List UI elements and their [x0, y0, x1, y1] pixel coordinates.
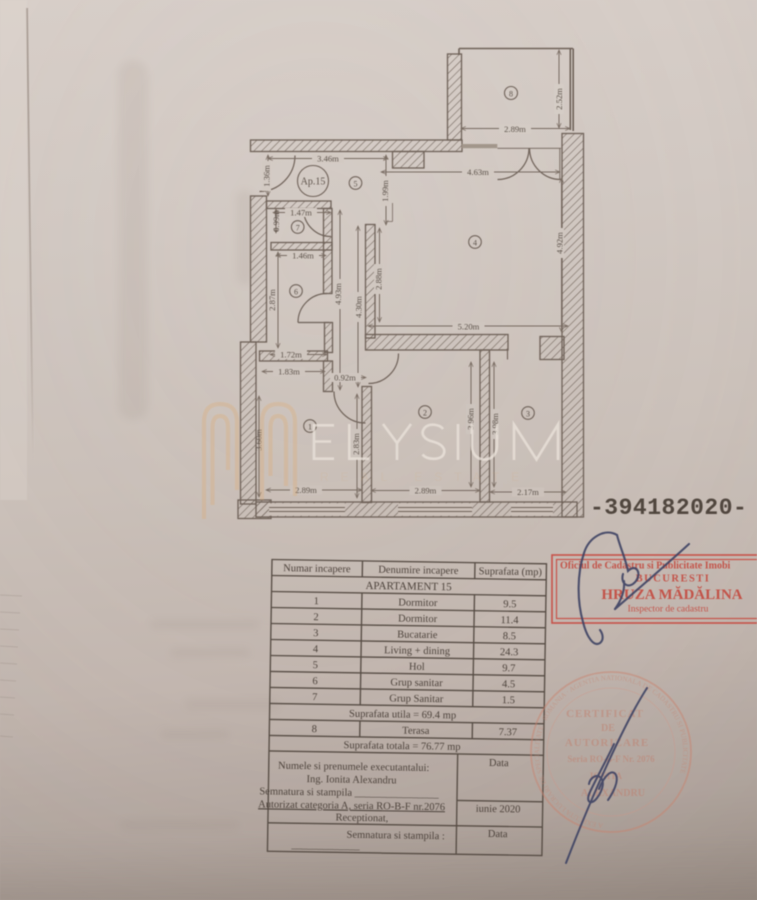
svg-text:Bucatarie: Bucatarie	[397, 629, 438, 641]
svg-text:3: 3	[526, 410, 530, 419]
svg-text:1.83m: 1.83m	[278, 367, 300, 377]
svg-text:_____________: _____________	[290, 840, 360, 852]
svg-text:Receptionat,: Receptionat,	[335, 813, 388, 825]
svg-text:4.30m: 4.30m	[354, 296, 364, 318]
svg-text:DE: DE	[601, 723, 615, 734]
svg-text:8: 8	[509, 90, 513, 99]
svg-text:6: 6	[294, 288, 298, 297]
svg-text:2.87m: 2.87m	[267, 289, 277, 311]
svg-text:Inspector de cadastru: Inspector de cadastru	[628, 605, 709, 615]
svg-text:1.99m: 1.99m	[380, 180, 390, 202]
svg-text:Data: Data	[488, 829, 508, 840]
svg-text:Dormitor: Dormitor	[398, 597, 438, 609]
svg-text:3.98m: 3.98m	[490, 413, 500, 435]
svg-text:0.99m: 0.99m	[271, 210, 281, 232]
svg-text:1: 1	[314, 596, 319, 607]
svg-text:Dormitor: Dormitor	[398, 613, 438, 625]
svg-text:8.5: 8.5	[503, 631, 516, 642]
svg-text:BUCURESTI: BUCURESTI	[636, 574, 711, 585]
svg-text:1.46m: 1.46m	[292, 251, 314, 261]
svg-text:Ing. Ionita Alexandru: Ing. Ionita Alexandru	[306, 774, 397, 786]
svg-text:6: 6	[312, 676, 317, 687]
svg-text:Living + dining: Living + dining	[384, 645, 451, 657]
svg-text:3: 3	[313, 628, 318, 639]
svg-text:7: 7	[312, 692, 317, 703]
svg-text:5: 5	[354, 180, 358, 189]
svg-text:REAL ESTATE: REAL ESTATE	[320, 470, 531, 484]
svg-text:3.96m: 3.96m	[466, 408, 476, 430]
svg-text:1.47m: 1.47m	[290, 208, 312, 218]
svg-text:2.89m: 2.89m	[504, 124, 526, 134]
svg-text:0.92m: 0.92m	[334, 373, 356, 383]
svg-text:2.89m: 2.89m	[295, 485, 317, 495]
svg-text:2.88m: 2.88m	[374, 268, 384, 290]
svg-text:2: 2	[313, 612, 318, 623]
svg-text:7.37: 7.37	[499, 727, 518, 738]
svg-text:4.63m: 4.63m	[467, 167, 489, 177]
svg-text:Grup sanitar: Grup sanitar	[390, 677, 443, 689]
svg-text:9.5: 9.5	[503, 599, 516, 610]
svg-text:Semnatura si stampila :: Semnatura si stampila :	[346, 830, 445, 843]
svg-text:7: 7	[296, 224, 300, 233]
svg-text:2.17m: 2.17m	[517, 487, 539, 497]
svg-text:iunie 2020: iunie 2020	[476, 804, 521, 816]
svg-text:Suprafata utila = 69.4 mp: Suprafata utila = 69.4 mp	[349, 709, 456, 722]
svg-text:Hol: Hol	[409, 662, 425, 673]
svg-text:1.72m: 1.72m	[280, 350, 302, 360]
svg-text:8: 8	[312, 724, 317, 735]
svg-text:1: 1	[308, 423, 312, 432]
svg-text:1.36m: 1.36m	[262, 165, 272, 187]
svg-text:2: 2	[423, 409, 427, 418]
svg-text:11.4: 11.4	[500, 615, 519, 626]
svg-text:Suprafata totala = 76.77 mp: Suprafata totala = 76.77 mp	[343, 740, 460, 753]
svg-text:24.3: 24.3	[500, 647, 519, 658]
svg-text:1.5: 1.5	[502, 695, 515, 706]
svg-text:Grup Sanitar: Grup Sanitar	[389, 693, 444, 705]
svg-text:Ap.15: Ap.15	[301, 177, 326, 188]
svg-text:Oficiul de Cadastru si Publici: Oficiul de Cadastru si Publicitate Imobi	[560, 561, 731, 572]
svg-text:Numar incapere: Numar incapere	[283, 563, 351, 575]
svg-text:Suprafata (mp): Suprafata (mp)	[479, 566, 543, 578]
svg-text:APARTAMENT 15: APARTAMENT 15	[365, 580, 452, 593]
svg-text:5.20m: 5.20m	[458, 322, 480, 332]
svg-text:AUTORIZARE: AUTORIZARE	[565, 737, 649, 749]
svg-text:4.92m: 4.92m	[555, 232, 565, 254]
svg-text:2.52m: 2.52m	[554, 88, 564, 110]
svg-text:2.83m: 2.83m	[351, 433, 361, 455]
svg-text:4.93m: 4.93m	[333, 283, 343, 305]
svg-text:4: 4	[313, 644, 319, 655]
svg-text:9.7: 9.7	[502, 663, 515, 674]
svg-text:5: 5	[313, 660, 318, 671]
svg-text:Data: Data	[489, 758, 509, 769]
svg-text:Terasa: Terasa	[402, 726, 430, 737]
svg-text:4.5: 4.5	[502, 679, 515, 690]
svg-text:Denumire incapere: Denumire incapere	[378, 565, 459, 577]
svg-text:4: 4	[473, 239, 477, 248]
svg-text:-394182020-: -394182020-	[590, 495, 747, 521]
svg-text:3.46m: 3.46m	[317, 154, 339, 164]
svg-text:2.89m: 2.89m	[415, 486, 437, 496]
